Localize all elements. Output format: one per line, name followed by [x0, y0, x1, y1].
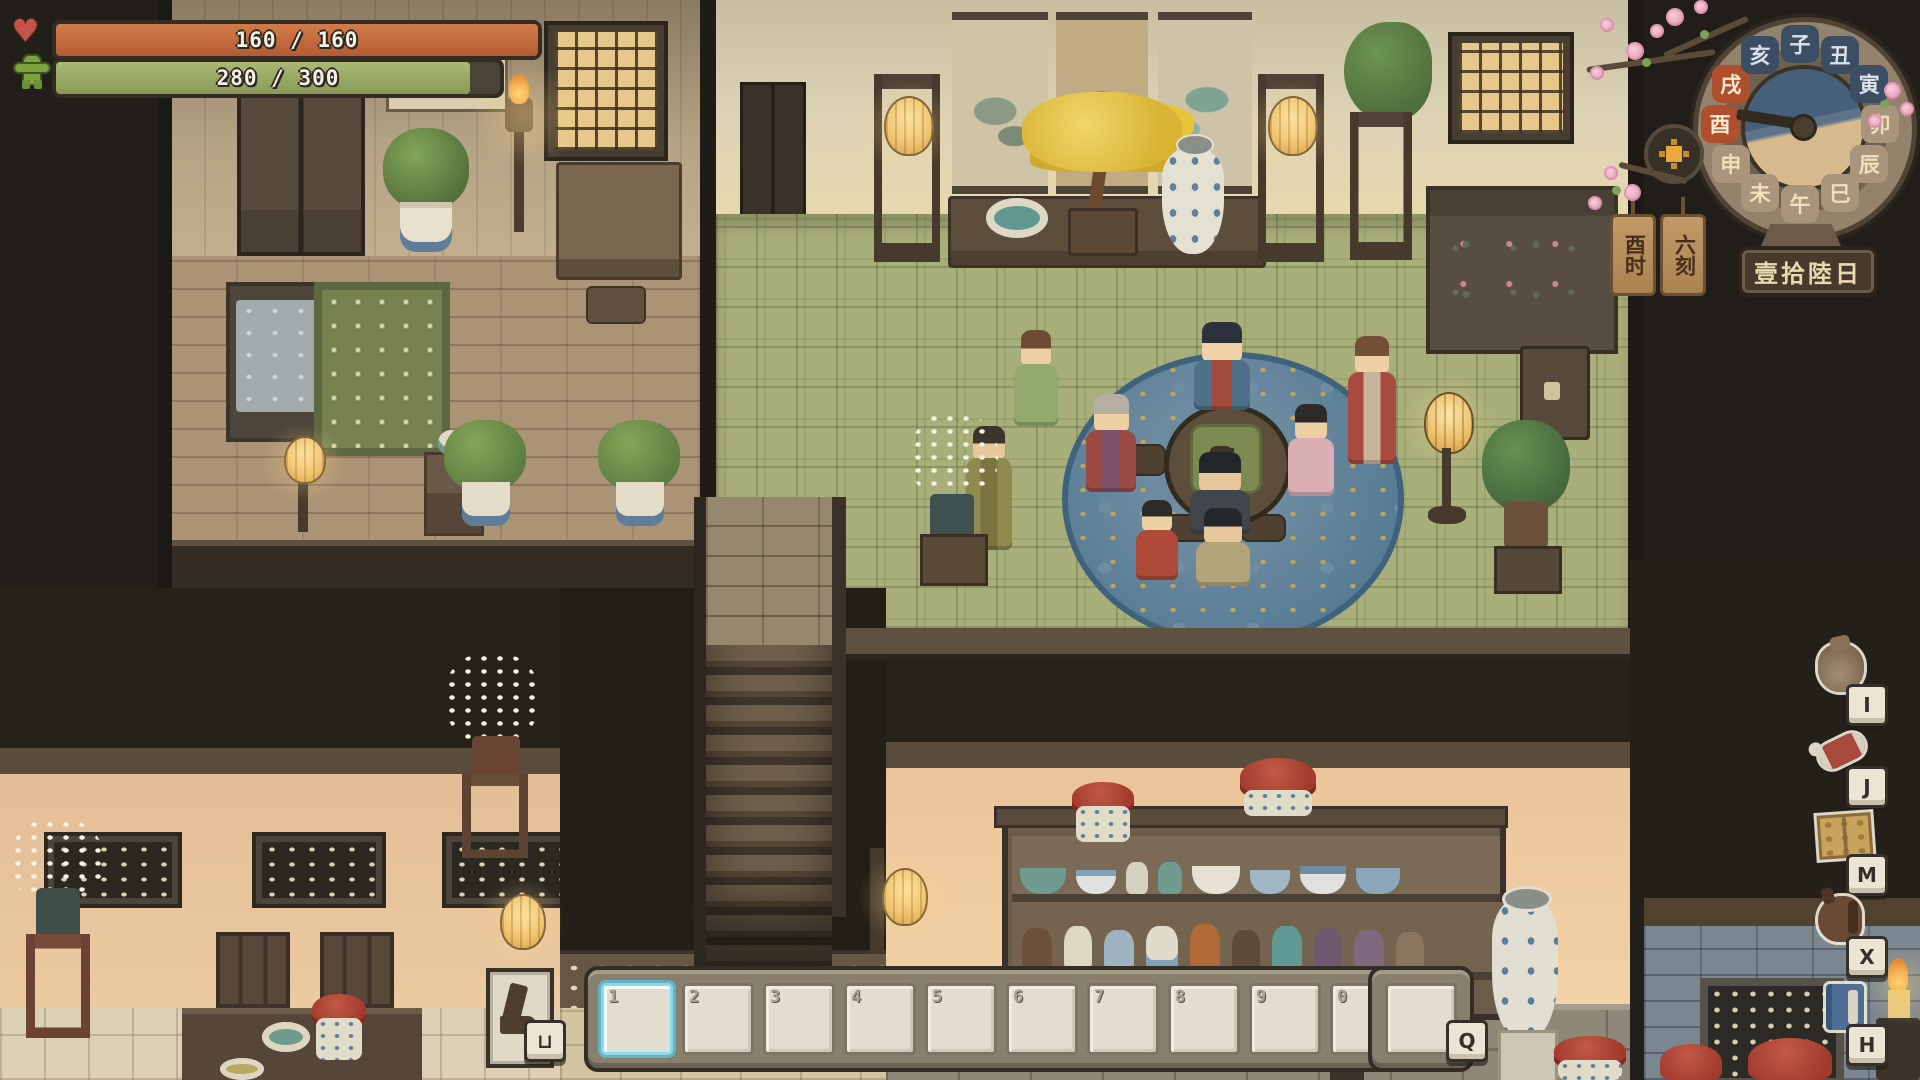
dial-knob — [1790, 114, 1817, 141]
slot-number: 8 — [1175, 987, 1185, 1007]
covered-jar-shelf-1 — [1072, 782, 1134, 842]
shortcut-inventory[interactable]: I — [1814, 644, 1914, 724]
hotbar-slot-9[interactable]: 9 — [1249, 983, 1321, 1055]
character-pink-woman — [1288, 404, 1334, 496]
time-dial: 子丑寅卯辰巳午未申酉戌亥 壹拾陸日 — [1688, 12, 1912, 282]
shortcut-mount[interactable]: X — [1814, 896, 1914, 976]
floor-lamp-base — [1428, 506, 1466, 524]
bamboo-plant — [383, 128, 469, 210]
shortcut-food[interactable]: J — [1814, 726, 1914, 806]
bowl — [1250, 870, 1290, 894]
hotbar-slot-4[interactable]: 4 — [844, 983, 916, 1055]
hotbar-slot-5[interactable]: 5 — [925, 983, 997, 1055]
orchid-stand — [26, 934, 90, 1038]
health-bar: 160 / 160 — [52, 20, 542, 60]
slot-number: 1 — [608, 987, 618, 1007]
tall-plant-pot — [1504, 502, 1548, 552]
key-X: X — [1846, 936, 1888, 978]
kitchen-wall-lantern — [882, 868, 928, 926]
torch-flame — [509, 74, 529, 104]
stamina-icon — [24, 56, 40, 84]
living-room-door — [740, 82, 806, 218]
stamina-value: 280 / 300 — [56, 62, 500, 94]
hotbar-slot-3[interactable]: 3 — [763, 983, 835, 1055]
bowl — [1300, 866, 1346, 894]
large-white-vase — [1492, 896, 1558, 1038]
bed-chest-clasp — [1544, 382, 1560, 400]
left-room-bench — [586, 286, 646, 324]
left-room-table — [556, 162, 682, 280]
hanging-lantern-left — [884, 96, 934, 156]
stair-rail-left — [694, 497, 706, 997]
bowl — [1192, 866, 1240, 894]
plant-a-pot — [462, 482, 510, 526]
character-tan-robe — [1196, 508, 1250, 586]
key-M: M — [1846, 854, 1888, 896]
scroll-painting-1 — [952, 12, 1048, 194]
bowl — [1020, 868, 1066, 894]
hanging-lantern-right — [1268, 96, 1318, 156]
slot-number: 4 — [851, 987, 861, 1007]
window-b2 — [256, 836, 382, 904]
day-plaque: 壹拾陸日 — [1738, 246, 1878, 297]
hotbar-slots: 1234567890 — [584, 966, 1419, 1072]
double-bed-quilt — [1438, 222, 1598, 316]
bowl — [1356, 868, 1400, 894]
quarter-tag-text: 六刻 — [1672, 234, 1695, 276]
quarter-tag: 六刻 — [1660, 214, 1706, 296]
hour-tag: 酉时 — [1610, 214, 1656, 296]
slot-number: 9 — [1256, 987, 1266, 1007]
key-J: J — [1846, 766, 1888, 808]
living-room-bottom-beam — [716, 628, 1630, 660]
character-red-child — [1136, 500, 1178, 580]
shortcut-map[interactable]: M — [1814, 814, 1914, 894]
character-red-woman — [1348, 336, 1396, 464]
bonsai-pot — [1068, 208, 1138, 256]
stair-landing — [706, 497, 832, 647]
slot-number: 0 — [1337, 987, 1347, 1007]
bed-quilt — [236, 300, 318, 412]
torch-pole — [514, 128, 524, 232]
key-H: H — [1846, 1024, 1888, 1066]
floor-lamp — [1424, 392, 1474, 454]
covered-jar-floor — [1554, 1036, 1626, 1080]
cup — [1126, 862, 1148, 894]
character-host — [1194, 322, 1250, 410]
zodiac-hour-亥: 亥 — [1741, 36, 1779, 74]
lily-stand — [920, 534, 988, 586]
plant-near-stairs-stand — [462, 774, 528, 858]
key-I: I — [1846, 684, 1888, 726]
map-icon — [1817, 812, 1874, 860]
zodiac-hour-申: 申 — [1712, 145, 1750, 183]
left-room-window — [548, 25, 664, 157]
zodiac-hour-酉: 酉 — [1701, 105, 1739, 143]
left-room-rug — [314, 282, 450, 456]
vine-plant-stand — [1350, 112, 1412, 260]
zodiac-hour-寅: 寅 — [1850, 65, 1888, 103]
staircase — [706, 645, 832, 995]
tall-plant-stand — [1494, 546, 1562, 594]
room-divider — [700, 0, 716, 560]
covered-jar-table — [312, 994, 366, 1060]
hotbar-slot-6[interactable]: 6 — [1006, 983, 1078, 1055]
zodiac-hour-巳: 巳 — [1821, 174, 1859, 212]
slot-number: 5 — [932, 987, 942, 1007]
shelf-row-1 — [1012, 836, 1500, 902]
hotbar-slot-1[interactable]: 1 — [601, 983, 673, 1055]
zodiac-hour-子: 子 — [1781, 25, 1819, 63]
heart-icon: ♥ — [14, 12, 37, 50]
character-elder-woman — [1086, 394, 1136, 492]
tall-plant — [1482, 420, 1570, 512]
left-room-bottom-wall — [158, 540, 708, 594]
plant-b-pot — [616, 482, 664, 526]
mushroom-stool-1 — [1660, 1044, 1722, 1080]
living-room-right-edge — [1628, 0, 1644, 628]
slot-number: 6 — [1013, 987, 1023, 1007]
character-standing-girl — [1014, 330, 1058, 426]
fishbowl — [986, 198, 1048, 238]
floor-lamp-pole — [1442, 448, 1451, 510]
dish-1 — [262, 1022, 310, 1052]
orchid-pot — [36, 888, 80, 940]
slot-number: 7 — [1094, 987, 1104, 1007]
porcelain-vase — [1162, 148, 1224, 254]
living-room-window — [1452, 36, 1570, 140]
slot-number: 2 — [689, 987, 699, 1007]
hour-tag-text: 酉时 — [1622, 234, 1645, 276]
dish-2 — [220, 1058, 264, 1080]
vase-lid — [1176, 134, 1214, 156]
zodiac-hour-午: 午 — [1781, 185, 1819, 223]
key-boots: ⊔ — [524, 1020, 566, 1062]
slot-number: 3 — [770, 987, 780, 1007]
shortcut-handbook[interactable]: H — [1814, 984, 1914, 1064]
kitchen-void — [886, 654, 1630, 744]
plant-near-stairs — [444, 652, 540, 744]
stamina-bar: 280 / 300 — [52, 58, 504, 98]
vine-plant — [1344, 22, 1432, 122]
left-room-lantern — [284, 436, 326, 484]
cup — [1158, 862, 1182, 894]
hotbar-slot-2[interactable]: 2 — [682, 983, 754, 1055]
bonsai-foliage — [1022, 92, 1182, 172]
bamboo-pot — [400, 202, 452, 252]
white-vase-lid — [1502, 886, 1552, 912]
stair-rail-right — [832, 497, 846, 917]
key-Q: Q — [1446, 1020, 1488, 1062]
health-value: 160 / 160 — [56, 24, 538, 56]
covered-jar-shelf-2 — [1240, 758, 1316, 816]
lily-flowers — [910, 412, 998, 502]
hotbar-slot-7[interactable]: 7 — [1087, 983, 1159, 1055]
bowl — [1076, 870, 1116, 894]
wall-lantern-b1 — [500, 894, 546, 950]
game-screen: ♥ 160 / 160 280 / 300 子丑寅卯辰巳午未申酉戌亥 壹拾陸日 … — [0, 0, 1920, 1080]
white-vase-pedestal — [1498, 1030, 1558, 1080]
hotbar-slot-8[interactable]: 8 — [1168, 983, 1240, 1055]
jar — [1190, 924, 1220, 972]
